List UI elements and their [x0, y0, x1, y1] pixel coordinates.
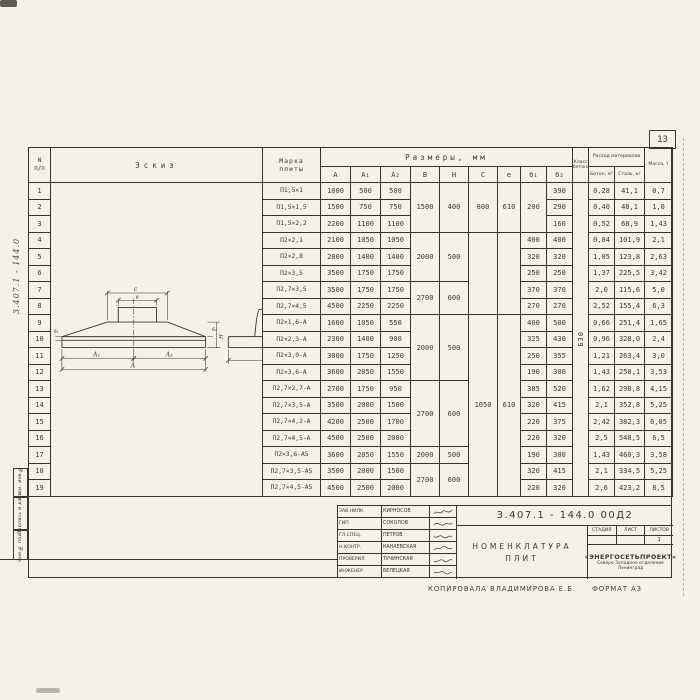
cell-mass: 3,0 [645, 348, 673, 365]
person-name: Соколов [382, 518, 430, 529]
cell-mark: П2×1,6-А [263, 315, 321, 332]
cell-b1: 400 [521, 232, 547, 249]
header-a1: А₁ [351, 167, 381, 183]
person-name: Канаевская [382, 542, 430, 553]
cell-steel: 123,8 [615, 249, 645, 266]
cell-mass: 4,15 [645, 381, 673, 398]
cell-steel: 328,0 [615, 331, 645, 348]
cell-num: 19 [29, 480, 51, 497]
cell-a: 3500 [321, 397, 351, 414]
cell-b2: 500 [547, 315, 573, 332]
header-e: е [498, 167, 521, 183]
person-signature [430, 542, 456, 553]
cell-b2: 415 [547, 463, 573, 480]
title-block: Зав.НИЛК Кирносов ГИП Соколов Гл.спец. П… [337, 505, 672, 578]
cell-concrete: 1,43 [589, 447, 615, 464]
cell-b2: 430 [547, 331, 573, 348]
cell-a1: 2500 [351, 430, 381, 447]
cell-a: 2200 [321, 216, 351, 233]
cell-b2: 300 [547, 447, 573, 464]
cell-a1: 1050 [351, 232, 381, 249]
person-name: Петров [382, 530, 430, 541]
cell-a: 2300 [321, 331, 351, 348]
header-mass: Масса, т [645, 148, 673, 183]
organization: «ЭНЕРГОСЕТЬПРОЕКТ» Северо-Западное отдел… [588, 545, 673, 579]
person-role: Зав.НИЛК [338, 506, 382, 517]
sheets-label: Листов [645, 526, 673, 535]
sketch-cell: с е А₁ А₂ А Н б₂ б₁ В 100 [51, 183, 263, 497]
cell-mark: П2×3,5 [263, 265, 321, 282]
cell-num: 13 [29, 381, 51, 398]
cell-a: 4200 [321, 414, 351, 431]
stamp-label: Инв.№ подл. [18, 528, 23, 562]
stage-label: Стадия [588, 526, 617, 535]
cell-h: 500 [440, 315, 469, 381]
cell-b1: 220 [521, 480, 547, 497]
cell-num: 10 [29, 331, 51, 348]
cell-mass: 6,5 [645, 430, 673, 447]
cell-b1: 320 [521, 463, 547, 480]
header-b1: б₁ [521, 167, 547, 183]
dim-b1-label: б₁ [54, 328, 59, 335]
cell-b2: 290 [547, 199, 573, 216]
cell-num: 18 [29, 463, 51, 480]
cell-h: 600 [440, 463, 469, 496]
cell-h: 600 [440, 282, 469, 315]
cell-a1: 1750 [351, 265, 381, 282]
cell-mass: 5,25 [645, 397, 673, 414]
cell-a: 4500 [321, 298, 351, 315]
cell-a2: 550 [381, 315, 411, 332]
cell-mark: П2×2,1 [263, 232, 321, 249]
sheet-value [617, 536, 646, 544]
cell-b2: 160 [547, 216, 573, 233]
cell-b1: 385 [521, 381, 547, 398]
cell-a: 3500 [321, 282, 351, 299]
stage-sheet-values: 1 [588, 536, 673, 545]
header-consumption: Расход материалов [589, 148, 645, 167]
cell-concrete: 2,6 [589, 480, 615, 497]
cell-b: 2700 [411, 381, 440, 447]
cell-a2: 1100 [381, 216, 411, 233]
cell-num: 5 [29, 249, 51, 266]
cell-steel: 460,3 [615, 447, 645, 464]
cell-a: 2100 [321, 232, 351, 249]
scan-fold-line [683, 138, 684, 596]
person-role: ГИП [338, 518, 382, 529]
scan-smudge [0, 0, 17, 7]
stamp-inv-podl: Инв.№ подл. [13, 530, 28, 560]
header-mark: Марка плиты [263, 148, 321, 183]
slab-sketch: с е А₁ А₂ А Н б₂ б₁ В 100 [51, 284, 262, 382]
cell-a2: 1400 [381, 249, 411, 266]
dim-h-label: Н [219, 334, 225, 340]
cell-steel: 68,9 [615, 216, 645, 233]
cell-mark: П2,7×4,5 [263, 298, 321, 315]
cell-num: 16 [29, 430, 51, 447]
stamp-podpis-data: Подпись и дата [13, 497, 28, 530]
cell-c: 800 [469, 183, 498, 233]
cell-mass: 2,4 [645, 331, 673, 348]
front-view [62, 299, 206, 354]
cell-concrete: 1,37 [589, 265, 615, 282]
dim-a-label: А [129, 363, 135, 370]
cell-b2: 355 [547, 348, 573, 365]
cell-concrete: 1,21 [589, 348, 615, 365]
cell-steel: 423,2 [615, 480, 645, 497]
cell-concrete: 1,05 [589, 249, 615, 266]
cell-a1: 1050 [351, 315, 381, 332]
cell-a1: 2000 [351, 397, 381, 414]
cell-a2: 1050 [381, 232, 411, 249]
cell-mass: 2,1 [645, 232, 673, 249]
cell-a2: 1550 [381, 447, 411, 464]
cell-a2: 2000 [381, 480, 411, 497]
cell-a2: 1750 [381, 265, 411, 282]
cell-b2: 375 [547, 414, 573, 431]
cell-a: 2700 [321, 381, 351, 398]
people-row: Н.контр. Канаевская [338, 542, 456, 554]
cell-concrete: 0,84 [589, 232, 615, 249]
cell-concrete: 1,62 [589, 381, 615, 398]
cell-b: 2700 [411, 463, 440, 496]
cell-mark: П2,7×3,5-А5 [263, 463, 321, 480]
cell-a2: 1500 [381, 463, 411, 480]
person-role: Гл.спец. [338, 530, 382, 541]
person-signature [430, 518, 456, 529]
cell-mark: П2×3,6-А [263, 364, 321, 381]
cell-b2: 415 [547, 397, 573, 414]
cell-a: 3000 [321, 348, 351, 365]
cell-concrete: 2,0 [589, 282, 615, 299]
cell-num: 15 [29, 414, 51, 431]
cell-steel: 250,1 [615, 364, 645, 381]
cell-steel: 48,1 [615, 199, 645, 216]
cell-b: 2000 [411, 315, 440, 381]
cell-b2: 320 [547, 249, 573, 266]
nomenclature-table: N п/п Эскиз Марка плиты Размеры, мм Клас… [28, 147, 673, 497]
person-role: Н.контр. [338, 542, 382, 553]
cell-a: 1500 [321, 199, 351, 216]
cell-e: 610 [498, 315, 521, 497]
cell-a2: 1550 [381, 364, 411, 381]
title-block-people: Зав.НИЛК Кирносов ГИП Соколов Гл.спец. П… [338, 506, 456, 577]
cell-a2: 2250 [381, 298, 411, 315]
cell-a: 3500 [321, 265, 351, 282]
cell-a2: 900 [381, 331, 411, 348]
cell-mass: 8,5 [645, 480, 673, 497]
cell-mark: П2,7×4,5-А [263, 430, 321, 447]
header-num-top: N [29, 157, 50, 165]
cell-num: 12 [29, 364, 51, 381]
document-number: 3.407.1 - 144.0 00Д2 [456, 506, 673, 526]
header-dimensions: Размеры, мм [321, 148, 573, 167]
drawing-sheet: 13 3.407.1 - 144.0 Взам. инв.№ Подпись и… [0, 0, 700, 700]
cell-steel: 251,4 [615, 315, 645, 332]
cell-a: 3500 [321, 463, 351, 480]
cell-mark: П2×2,3-А [263, 331, 321, 348]
cell-b: 1500 [411, 183, 440, 233]
header-a: А [321, 167, 351, 183]
person-name: Кирносов [382, 506, 430, 517]
cell-a1: 1750 [351, 348, 381, 365]
cell-a: 3600 [321, 364, 351, 381]
cell-mass: 3,58 [645, 447, 673, 464]
header-mark-bottom: плиты [263, 165, 320, 173]
cell-num: 17 [29, 447, 51, 464]
header-sketch: Эскиз [51, 148, 263, 183]
cell-a1: 1100 [351, 216, 381, 233]
person-signature [430, 530, 456, 541]
dim-b2-label: б₂ [212, 326, 217, 333]
cell-b2: 370 [547, 282, 573, 299]
cell-mark: П2×3,0-А [263, 348, 321, 365]
dim-c-label: с [134, 286, 138, 293]
cell-h: 500 [440, 232, 469, 282]
cell-class: Б30 [573, 183, 589, 497]
cell-num: 1 [29, 183, 51, 200]
cell-e [498, 232, 521, 315]
scan-smudge [36, 688, 60, 693]
cell-a2: 1750 [381, 282, 411, 299]
cell-mass: 6,05 [645, 414, 673, 431]
cell-num: 2 [29, 199, 51, 216]
cell-concrete: 0,52 [589, 216, 615, 233]
cell-mass: 5,0 [645, 282, 673, 299]
cell-steel: 352,8 [615, 397, 645, 414]
person-signature [430, 554, 456, 565]
cell-steel: 155,4 [615, 298, 645, 315]
cell-mark: П2,7×4,5-А5 [263, 480, 321, 497]
drawing-title-line1: Номенклатура [472, 542, 571, 551]
cell-c: 1050 [469, 315, 498, 497]
cell-a2: 1500 [381, 397, 411, 414]
cell-b: 2700 [411, 282, 440, 315]
cell-a: 4500 [321, 480, 351, 497]
cell-a2: 500 [381, 183, 411, 200]
cell-b2: 300 [547, 364, 573, 381]
header-b: В [411, 167, 440, 183]
cell-a1: 750 [351, 199, 381, 216]
header-mark-top: Марка [263, 157, 320, 165]
cell-mark: П1,5×1,5 [263, 199, 321, 216]
person-name: Белецкая [382, 566, 430, 577]
cell-a1: 1400 [351, 249, 381, 266]
cell-concrete: 2,52 [589, 298, 615, 315]
sheets-value: 1 [645, 536, 673, 544]
sheet-label: Лист [617, 526, 646, 535]
cell-num: 3 [29, 216, 51, 233]
header-concrete-m3: Бетон, м³ [589, 167, 615, 183]
cell-mark: П2,7×3,5 [263, 282, 321, 299]
cell-h: 500 [440, 447, 469, 464]
cell-b2: 390 [547, 183, 573, 200]
cell-a2: 750 [381, 199, 411, 216]
header-b2: б₂ [547, 167, 573, 183]
cell-b2: 400 [547, 232, 573, 249]
cell-a1: 2500 [351, 480, 381, 497]
cell-num: 8 [29, 298, 51, 315]
cell-a1: 2050 [351, 364, 381, 381]
cell-b1: 220 [521, 430, 547, 447]
people-row: Зав.НИЛК Кирносов [338, 506, 456, 518]
cell-mass: 1,0 [645, 199, 673, 216]
dim-a2-label: А₂ [165, 352, 174, 359]
cell-a1: 2500 [351, 414, 381, 431]
cell-concrete: 0,96 [589, 331, 615, 348]
cell-b1: 400 [521, 315, 547, 332]
header-num-bottom: п/п [29, 165, 50, 173]
cell-c [469, 232, 498, 315]
cell-steel: 41,1 [615, 183, 645, 200]
cell-mass: 5,25 [645, 463, 673, 480]
cell-concrete: 0,40 [589, 199, 615, 216]
cell-a: 4500 [321, 430, 351, 447]
cell-b1: 270 [521, 298, 547, 315]
cell-a: 3600 [321, 447, 351, 464]
person-name: Тучинская [382, 554, 430, 565]
org-name: «ЭНЕРГОСЕТЬПРОЕКТ» [585, 553, 677, 561]
concrete-class-value: Б30 [577, 331, 585, 347]
header-c: С [469, 167, 498, 183]
cell-b1: 325 [521, 331, 547, 348]
header-h: Н [440, 167, 469, 183]
header-steel-kg: Сталь, кг [615, 167, 645, 183]
cell-b2: 320 [547, 480, 573, 497]
cell-steel: 334,5 [615, 463, 645, 480]
header-num: N п/п [29, 148, 51, 183]
cell-a1: 1750 [351, 282, 381, 299]
cell-b1: 250 [521, 265, 547, 282]
cell-concrete: 0,66 [589, 315, 615, 332]
cell-mass: 6,3 [645, 298, 673, 315]
person-signature [430, 566, 456, 577]
cell-steel: 548,5 [615, 430, 645, 447]
cell-num: 14 [29, 397, 51, 414]
footer-caption: Копировала Владимирова Е.Б. ФОРМАТ А3 [428, 585, 678, 593]
cell-steel: 382,3 [615, 414, 645, 431]
cell-b1: 190 [521, 447, 547, 464]
side-view [228, 302, 262, 353]
cell-b: 2000 [411, 232, 440, 282]
person-role: Проверил [338, 554, 382, 565]
cell-a2: 950 [381, 381, 411, 398]
page-number-value: 13 [657, 135, 668, 145]
format-label: ФОРМАТ А3 [592, 585, 642, 593]
cell-concrete: 1,43 [589, 364, 615, 381]
cell-b1: 370 [521, 282, 547, 299]
cell-mark: П2,7×2,7-А [263, 381, 321, 398]
copied-by: Копировала Владимирова Е.Б. [428, 585, 576, 593]
cell-a: 2800 [321, 249, 351, 266]
person-signature [430, 506, 456, 517]
people-row: ГИП Соколов [338, 518, 456, 530]
cell-num: 4 [29, 232, 51, 249]
org-city: Ленинград [618, 566, 643, 571]
cell-b1: 190 [521, 364, 547, 381]
cell-a2: 1250 [381, 348, 411, 365]
front-labels: с е А₁ А₂ А Н б₂ б₁ [54, 286, 225, 369]
cell-b2: 270 [547, 298, 573, 315]
cell-num: 6 [29, 265, 51, 282]
cell-concrete: 2,42 [589, 414, 615, 431]
cell-h: 400 [440, 183, 469, 233]
title-block-right: Стадия Лист Листов 1 «ЭНЕРГОСЕТЬПРОЕКТ» … [587, 526, 673, 579]
header-a2: А₂ [381, 167, 411, 183]
cell-mass: 3,53 [645, 364, 673, 381]
cell-mark: П1,5×2,2 [263, 216, 321, 233]
cell-num: 11 [29, 348, 51, 365]
cell-mark: П1,5×1 [263, 183, 321, 200]
cell-a1: 500 [351, 183, 381, 200]
side-dimensions [228, 337, 262, 364]
stage-sheet-header: Стадия Лист Листов [588, 526, 673, 536]
cell-b2: 520 [547, 381, 573, 398]
cell-concrete: 0,28 [589, 183, 615, 200]
cell-a: 1000 [321, 183, 351, 200]
cell-concrete: 2,1 [589, 463, 615, 480]
dim-a1-label: А₁ [92, 352, 100, 359]
table-row: 1 [29, 183, 673, 200]
cell-mass: 2,63 [645, 249, 673, 266]
cell-concrete: 2,1 [589, 397, 615, 414]
cell-mass: 3,42 [645, 265, 673, 282]
cell-b1: 200 [521, 183, 547, 233]
slab-drawing: с е А₁ А₂ А Н б₂ б₁ В 100 [51, 284, 262, 382]
cell-mark: П2×3,6-А5 [263, 447, 321, 464]
cell-mass: 0,7 [645, 183, 673, 200]
cell-b1: 220 [521, 414, 547, 431]
cell-b2: 320 [547, 430, 573, 447]
people-row: Гл.спец. Петров [338, 530, 456, 542]
drawing-title: Номенклатура плит [456, 526, 587, 579]
header-concrete-class: Класс бетона [573, 148, 589, 183]
cell-b1: 320 [521, 397, 547, 414]
cell-a1: 2250 [351, 298, 381, 315]
cell-mass: 1,65 [645, 315, 673, 332]
cell-b: 2000 [411, 447, 440, 464]
cell-a1: 1750 [351, 381, 381, 398]
cell-num: 7 [29, 282, 51, 299]
cell-a1: 1400 [351, 331, 381, 348]
bottom-margin-line [0, 559, 338, 560]
cell-b1: 320 [521, 249, 547, 266]
cell-a1: 2050 [351, 447, 381, 464]
cell-a2: 2000 [381, 430, 411, 447]
people-row: Инженер Белецкая [338, 566, 456, 577]
cell-a: 1600 [321, 315, 351, 332]
cell-concrete: 2,5 [589, 430, 615, 447]
cell-num: 9 [29, 315, 51, 332]
cell-mark: П2,7×3,5-А [263, 397, 321, 414]
cell-steel: 225,5 [615, 265, 645, 282]
cell-e: 610 [498, 183, 521, 233]
people-row: Проверил Тучинская [338, 554, 456, 566]
drawing-title-line2: плит [505, 554, 538, 563]
cell-steel: 298,8 [615, 381, 645, 398]
person-role: Инженер [338, 566, 382, 577]
cell-mass: 1,43 [645, 216, 673, 233]
cell-b2: 250 [547, 265, 573, 282]
cell-a2: 1700 [381, 414, 411, 431]
cell-steel: 101,9 [615, 232, 645, 249]
dim-e-label: е [136, 295, 139, 301]
cell-steel: 263,4 [615, 348, 645, 365]
cell-mark: П2×2,8 [263, 249, 321, 266]
cell-mark: П2,7×4,2-А [263, 414, 321, 431]
margin-doc-number: 3.407.1 - 144.0 [12, 216, 28, 336]
cell-steel: 115,6 [615, 282, 645, 299]
